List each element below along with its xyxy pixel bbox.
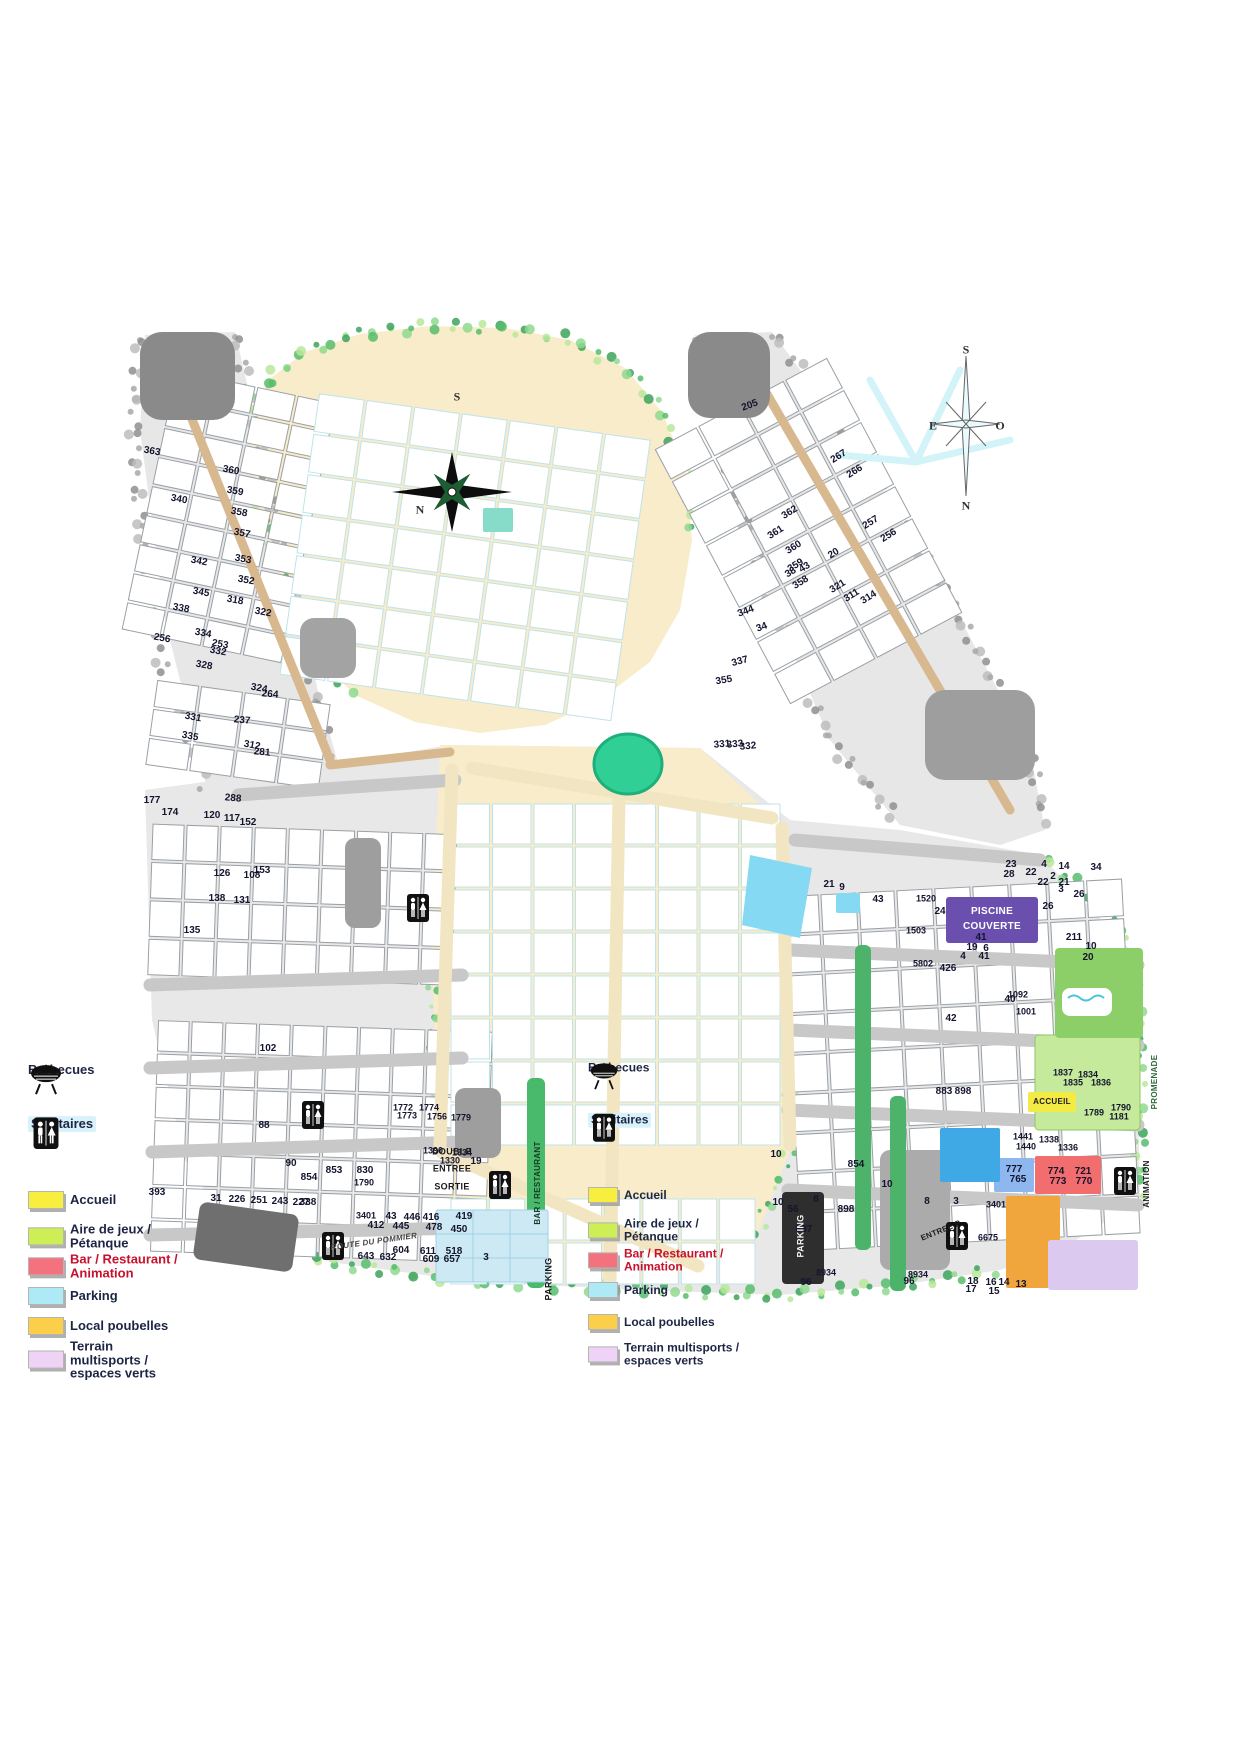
- legend-item-accueil: Accueil: [588, 1187, 667, 1203]
- legend-swatch-accueil: [588, 1187, 618, 1203]
- legend-center: Barbecues SanitairesAccueilAire de jeux …: [0, 0, 1241, 1755]
- legend-swatch-terrain-multisports: [588, 1346, 618, 1362]
- legend-swatch-local-poubelles: [588, 1314, 618, 1330]
- legend-label-local-poubelles: Local poubelles: [624, 1316, 715, 1329]
- campsite-map-canvas: 3633603593583573403423533523453383343323…: [0, 0, 1241, 1755]
- legend-item-parking: Parking: [588, 1282, 668, 1298]
- legend-item-sanitaires: Sanitaires: [588, 1113, 651, 1128]
- barbecue-icon: [588, 1062, 620, 1092]
- legend-swatch-bar-restaurant: [588, 1252, 618, 1268]
- legend-item-terrain-multisports: Terrain multisports / espaces verts: [588, 1341, 742, 1366]
- legend-label-bar-restaurant: Bar / Restaurant / Animation: [624, 1247, 742, 1272]
- legend-swatch-aire-de-jeux: [588, 1222, 618, 1238]
- legend-item-bar-restaurant: Bar / Restaurant / Animation: [588, 1247, 742, 1272]
- legend-label-aire-de-jeux: Aire de jeux / Pétanque: [624, 1217, 742, 1242]
- legend-label-terrain-multisports: Terrain multisports / espaces verts: [624, 1341, 742, 1366]
- legend-label-parking: Parking: [624, 1284, 668, 1297]
- legend-item-aire-de-jeux: Aire de jeux / Pétanque: [588, 1217, 742, 1242]
- legend-item-barbecues: Barbecues: [588, 1062, 649, 1075]
- sanitaires-icon: [588, 1113, 620, 1143]
- legend-label-accueil: Accueil: [624, 1189, 667, 1202]
- legend-swatch-parking: [588, 1282, 618, 1298]
- legend-item-local-poubelles: Local poubelles: [588, 1314, 715, 1330]
